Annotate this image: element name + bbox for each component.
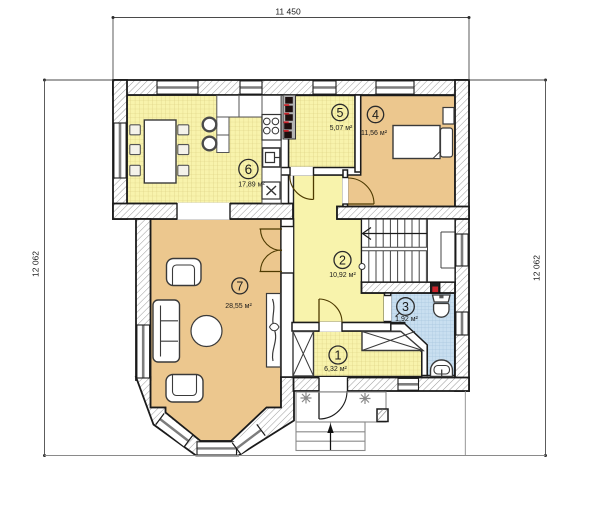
svg-text:1: 1 [335, 349, 342, 363]
svg-text:5,07 м²: 5,07 м² [330, 125, 353, 132]
svg-text:28,55 м²: 28,55 м² [225, 303, 252, 310]
svg-text:11 450: 11 450 [275, 7, 301, 17]
svg-text:3: 3 [402, 300, 409, 314]
svg-text:6,32 м²: 6,32 м² [324, 366, 347, 373]
svg-text:10,92 м²: 10,92 м² [329, 272, 356, 279]
svg-text:6: 6 [245, 162, 253, 177]
svg-text:5: 5 [337, 106, 344, 120]
svg-text:12 062: 12 062 [31, 251, 41, 277]
svg-text:2: 2 [339, 254, 346, 268]
svg-text:11,56 м²: 11,56 м² [361, 130, 388, 137]
svg-text:12 062: 12 062 [532, 255, 542, 281]
svg-text:1,92 м²: 1,92 м² [395, 316, 418, 323]
svg-text:17,89 м²: 17,89 м² [238, 182, 265, 189]
svg-text:7: 7 [236, 280, 243, 294]
svg-text:4: 4 [372, 108, 379, 122]
